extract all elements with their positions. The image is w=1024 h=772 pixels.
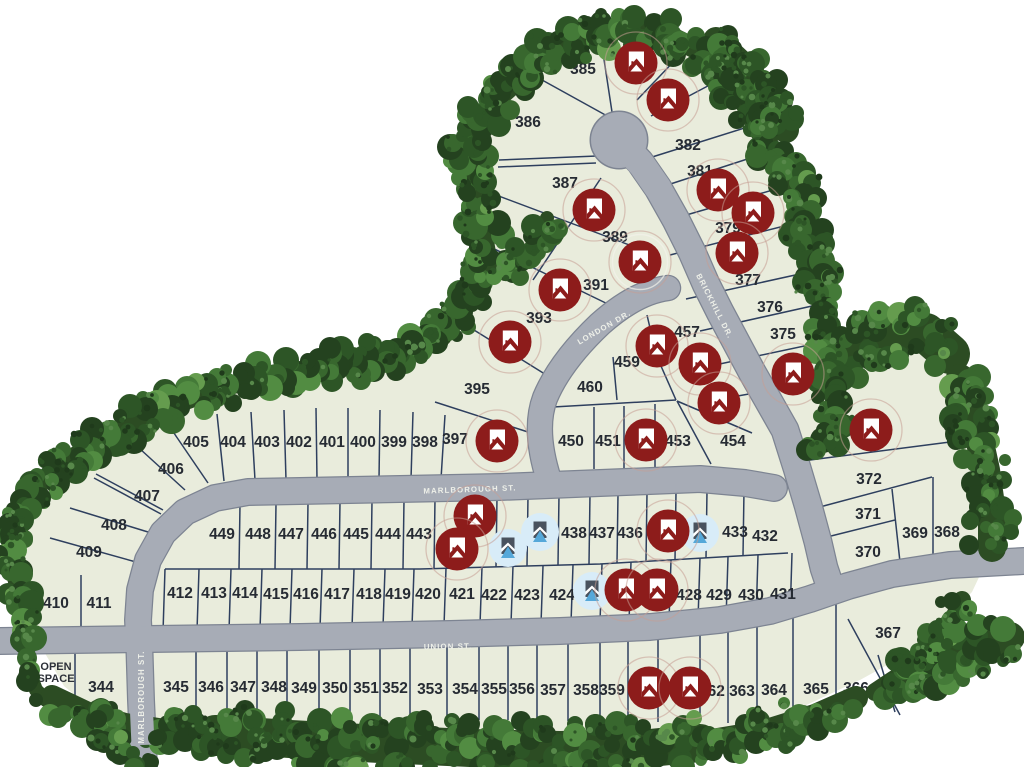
svg-text:401: 401 — [319, 434, 345, 451]
svg-text:397: 397 — [442, 431, 468, 448]
svg-text:430: 430 — [738, 587, 764, 604]
svg-text:375: 375 — [770, 326, 796, 343]
svg-text:372: 372 — [856, 471, 882, 488]
svg-text:420: 420 — [415, 586, 441, 603]
svg-text:350: 350 — [322, 680, 348, 697]
svg-text:364: 364 — [761, 682, 787, 699]
svg-text:403: 403 — [254, 434, 280, 451]
svg-text:428: 428 — [676, 587, 702, 604]
svg-text:356: 356 — [509, 681, 535, 698]
svg-text:357: 357 — [540, 682, 566, 699]
svg-text:421: 421 — [449, 586, 475, 603]
svg-text:359: 359 — [599, 682, 625, 699]
svg-text:414: 414 — [232, 585, 258, 602]
svg-text:411: 411 — [86, 595, 111, 612]
svg-text:448: 448 — [245, 526, 271, 543]
svg-text:406: 406 — [158, 461, 184, 478]
svg-text:418: 418 — [356, 586, 382, 603]
svg-text:415: 415 — [263, 586, 289, 603]
svg-text:408: 408 — [101, 517, 127, 534]
svg-text:382: 382 — [675, 137, 701, 154]
svg-text:422: 422 — [481, 587, 507, 604]
svg-text:346: 346 — [198, 679, 224, 696]
svg-text:MARLBOROUGH ST.: MARLBOROUGH ST. — [137, 650, 146, 743]
svg-text:410: 410 — [43, 595, 69, 612]
svg-text:454: 454 — [720, 433, 746, 450]
svg-text:404: 404 — [220, 434, 246, 451]
svg-text:387: 387 — [552, 175, 578, 192]
svg-text:348: 348 — [261, 679, 287, 696]
svg-text:376: 376 — [757, 299, 783, 316]
svg-text:449: 449 — [209, 526, 235, 543]
svg-text:399: 399 — [381, 434, 407, 451]
svg-text:353: 353 — [417, 681, 443, 698]
svg-text:344: 344 — [88, 679, 114, 696]
svg-text:402: 402 — [286, 434, 312, 451]
svg-text:437: 437 — [589, 525, 615, 542]
svg-text:369: 369 — [902, 525, 928, 542]
svg-text:358: 358 — [573, 682, 599, 699]
svg-text:432: 432 — [752, 528, 778, 545]
svg-text:433: 433 — [722, 524, 748, 541]
svg-text:431: 431 — [770, 586, 796, 603]
svg-text:424: 424 — [549, 587, 575, 604]
svg-text:423: 423 — [514, 587, 540, 604]
svg-text:371: 371 — [855, 506, 881, 523]
svg-text:367: 367 — [875, 625, 901, 642]
svg-text:352: 352 — [382, 680, 408, 697]
svg-text:400: 400 — [350, 434, 376, 451]
svg-text:409: 409 — [76, 544, 102, 561]
svg-text:447: 447 — [278, 526, 304, 543]
svg-text:349: 349 — [291, 680, 317, 697]
svg-text:405: 405 — [183, 434, 209, 451]
svg-text:377: 377 — [735, 272, 761, 289]
svg-text:386: 386 — [515, 114, 541, 131]
svg-text:417: 417 — [324, 586, 350, 603]
svg-text:460: 460 — [577, 379, 603, 396]
svg-text:436: 436 — [617, 525, 643, 542]
svg-text:365: 365 — [803, 681, 829, 698]
svg-text:370: 370 — [855, 544, 881, 561]
svg-text:395: 395 — [464, 381, 490, 398]
svg-text:443: 443 — [406, 526, 432, 543]
svg-text:355: 355 — [481, 681, 507, 698]
svg-text:413: 413 — [201, 585, 227, 602]
svg-text:450: 450 — [558, 433, 584, 450]
svg-text:OPEN: OPEN — [40, 661, 71, 673]
svg-text:363: 363 — [729, 683, 755, 700]
svg-text:347: 347 — [230, 679, 256, 696]
svg-text:412: 412 — [167, 585, 193, 602]
svg-text:444: 444 — [375, 526, 401, 543]
svg-text:345: 345 — [163, 679, 189, 696]
svg-text:438: 438 — [561, 525, 587, 542]
svg-text:398: 398 — [412, 434, 438, 451]
svg-text:453: 453 — [665, 433, 691, 450]
svg-text:429: 429 — [706, 587, 732, 604]
svg-text:445: 445 — [343, 526, 369, 543]
svg-text:416: 416 — [293, 586, 319, 603]
svg-text:351: 351 — [353, 680, 379, 697]
svg-text:SPACE: SPACE — [37, 673, 74, 685]
svg-text:446: 446 — [311, 526, 337, 543]
svg-text:407: 407 — [134, 488, 160, 505]
svg-text:368: 368 — [934, 524, 960, 541]
svg-text:UNION ST.: UNION ST. — [424, 642, 473, 652]
svg-text:419: 419 — [385, 586, 411, 603]
svg-text:451: 451 — [595, 433, 621, 450]
svg-text:354: 354 — [452, 681, 478, 698]
svg-text:391: 391 — [583, 277, 609, 294]
